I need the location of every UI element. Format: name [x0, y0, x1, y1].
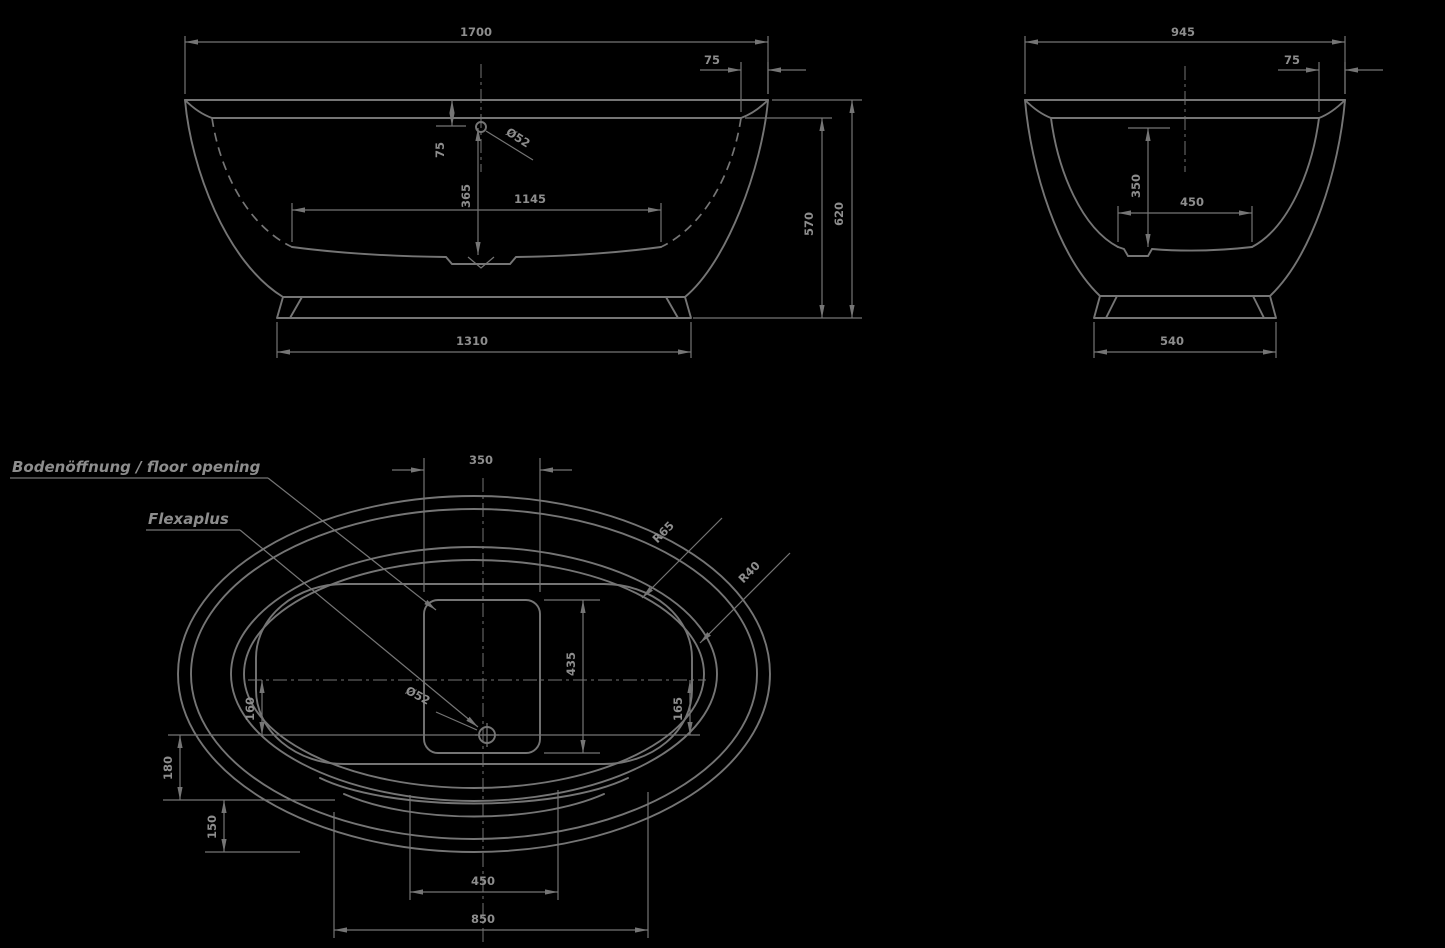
label-floor-opening: Bodenöffnung / floor opening	[10, 458, 436, 610]
dim-end-base: 540	[1094, 322, 1276, 358]
dim-end-rim-width: 75	[1278, 53, 1383, 112]
waste-label-text: Flexaplus	[148, 510, 229, 528]
dim-plan-edge-a: 180	[161, 735, 180, 800]
dim-text-rim-width: 75	[704, 53, 720, 67]
dim-plan-edge-b: 150	[205, 800, 224, 852]
dim-text-water-depth: 350	[1129, 174, 1143, 198]
front-view-outline	[185, 64, 768, 318]
dim-plan-radius-outer: R65	[642, 518, 722, 598]
floor-opening-rect	[424, 600, 540, 753]
dim-text-opening-width: 350	[469, 453, 493, 467]
dim-plan-drain-span: 450	[410, 790, 558, 900]
dim-end-water-depth: 350	[1128, 128, 1170, 247]
dim-text-overall-length: 1700	[460, 25, 492, 39]
dim-text-plan-drain-diameter: Ø52	[403, 683, 432, 707]
dim-text-base-width: 540	[1160, 334, 1184, 348]
dim-plan-radius-inner: R40	[700, 553, 790, 643]
dim-text-end-rim-width: 75	[1284, 53, 1300, 67]
dim-plan-opening-length: 435	[544, 600, 600, 753]
dim-text-inner-height: 570	[802, 212, 816, 236]
dim-text-opening-length: 435	[564, 652, 578, 676]
dim-plan-drain-diameter: Ø52	[403, 683, 477, 730]
dim-text-drain-span: 450	[471, 874, 495, 888]
dim-end-inner-bottom: 450	[1118, 195, 1252, 242]
dim-text-drain-offset-left: 160	[243, 697, 257, 721]
dim-front-rim-width: 75	[700, 53, 806, 112]
dim-text-front-drain-diameter: Ø52	[503, 125, 532, 151]
dim-text-overall-width: 945	[1171, 25, 1195, 39]
dim-text-overall-span: 850	[471, 912, 495, 926]
floor-opening-label-text: Bodenöffnung / floor opening	[12, 458, 261, 476]
dim-text-inner-bottom-width: 450	[1180, 195, 1204, 209]
dim-plan-opening-width: 350	[392, 453, 572, 592]
dim-text-inner-bottom-length: 1145	[514, 192, 546, 206]
dim-text-base-length: 1310	[456, 334, 488, 348]
dim-front-base: 1310	[277, 322, 691, 358]
dim-text-waterline-to-bottom: 365	[459, 184, 473, 208]
dim-front-overall-length: 1700	[185, 25, 768, 94]
dim-front-depths: 75 365	[433, 100, 478, 255]
dim-front-drain-diameter: Ø52	[486, 125, 533, 160]
dim-front-inner-bottom: 1145	[292, 192, 661, 242]
dim-text-rim-to-waterline: 75	[433, 142, 447, 158]
dim-text-radius-inner: R40	[735, 558, 762, 585]
end-view-outline	[1025, 66, 1345, 318]
drawing-canvas: 1700 75 75 365 Ø52 1145 1310 570 620	[0, 0, 1445, 948]
dim-text-overall-height: 620	[832, 202, 846, 226]
technical-drawing: 1700 75 75 365 Ø52 1145 1310 570 620	[0, 0, 1445, 948]
dim-plan-overall-span: 850	[334, 792, 648, 938]
dim-text-edge-offset-a: 180	[161, 756, 175, 780]
dim-text-drain-offset-right: 165	[671, 697, 685, 721]
dim-text-edge-offset-b: 150	[205, 815, 219, 839]
dim-front-heights: 570 620	[693, 100, 862, 318]
